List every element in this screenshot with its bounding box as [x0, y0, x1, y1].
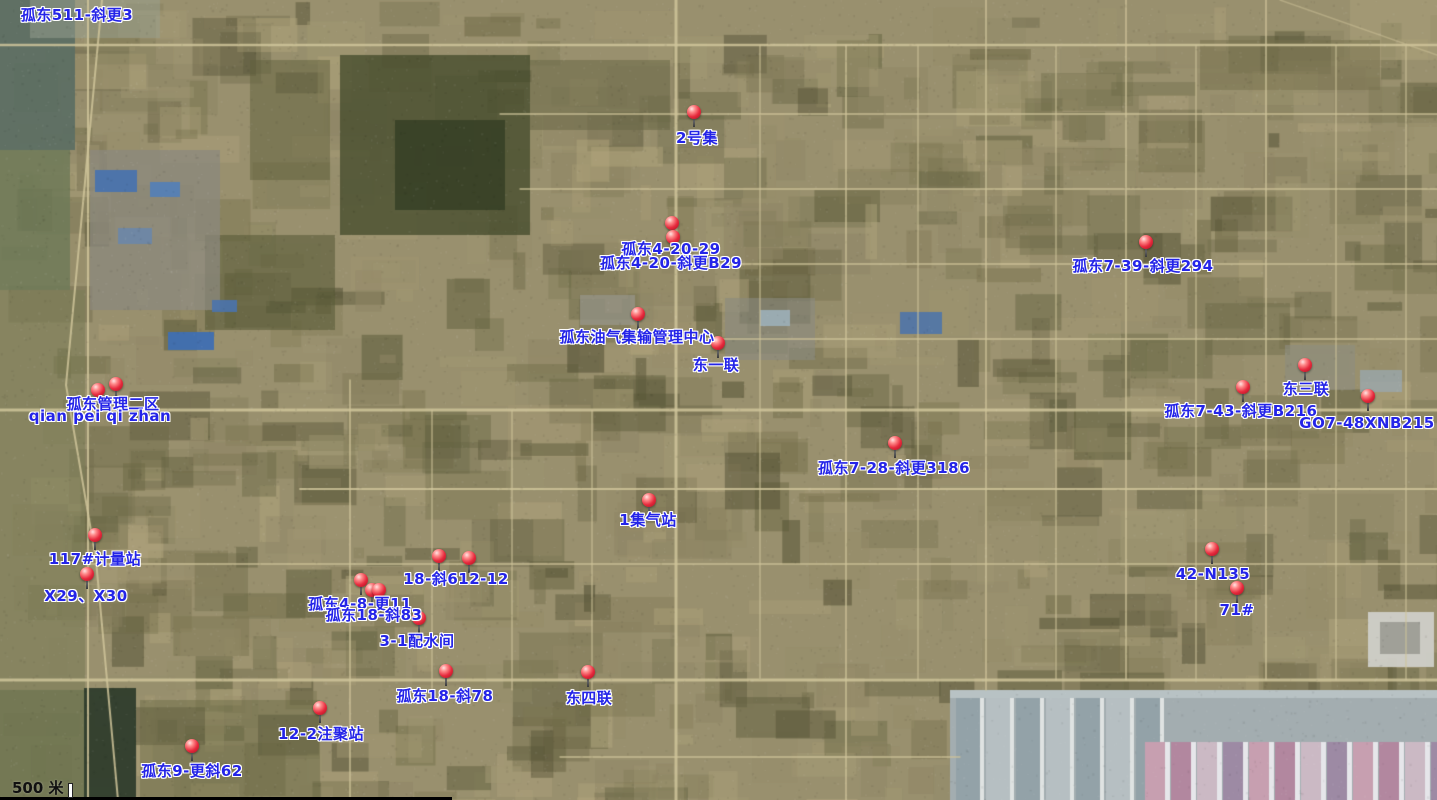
- pin-head-icon: [581, 665, 595, 679]
- marker-layer: 孤东511-斜更32号集孤东4-20-29孤东4-20-斜更B29孤东7-39-…: [0, 0, 1437, 800]
- scale-label: 500 米: [12, 777, 64, 798]
- map-label[interactable]: 71#: [1220, 602, 1255, 618]
- map-label[interactable]: 孤东7-43-斜更B216: [1164, 403, 1317, 419]
- map-label[interactable]: 3-1配水间: [379, 633, 454, 649]
- pin-head-icon: [631, 307, 645, 321]
- map-label[interactable]: 2号集: [676, 130, 718, 146]
- satellite-map-viewport[interactable]: 孤东511-斜更32号集孤东4-20-29孤东4-20-斜更B29孤东7-39-…: [0, 0, 1437, 800]
- scale-bar: 500 米: [0, 760, 460, 800]
- pin-head-icon: [313, 701, 327, 715]
- pin-head-icon: [1230, 581, 1244, 595]
- pin-head-icon: [888, 436, 902, 450]
- pin-head-icon: [462, 551, 476, 565]
- map-label[interactable]: GO7-48XNB215: [1299, 415, 1434, 431]
- pin-head-icon: [665, 216, 679, 230]
- map-label[interactable]: 42-N135: [1176, 566, 1250, 582]
- pin-head-icon: [185, 739, 199, 753]
- pin-head-icon: [1205, 542, 1219, 556]
- map-label[interactable]: 东四联: [566, 690, 613, 706]
- map-label[interactable]: 孤东511-斜更3: [21, 7, 133, 23]
- map-label[interactable]: 12-2注聚站: [278, 726, 364, 742]
- map-label[interactable]: 1集气站: [619, 512, 676, 528]
- pin-head-icon: [1236, 380, 1250, 394]
- map-label[interactable]: 孤东7-39-斜更294: [1072, 258, 1213, 274]
- map-label[interactable]: X29、X30: [44, 588, 127, 604]
- pin-head-icon: [1361, 389, 1375, 403]
- pin-head-icon: [88, 528, 102, 542]
- map-label[interactable]: 孤东18-斜83: [326, 607, 423, 623]
- map-label[interactable]: 东三联: [1283, 381, 1330, 397]
- map-label[interactable]: 18-斜612-12: [403, 571, 509, 587]
- pin-head-icon: [109, 377, 123, 391]
- pin-head-icon: [642, 493, 656, 507]
- map-label[interactable]: 孤东4-20-斜更B29: [600, 255, 742, 271]
- pin-head-icon: [1139, 235, 1153, 249]
- map-label[interactable]: 孤东18-斜78: [397, 688, 494, 704]
- map-label[interactable]: 孤东7-28-斜更3186: [818, 460, 970, 476]
- pin-head-icon: [1298, 358, 1312, 372]
- pin-head-icon: [432, 549, 446, 563]
- pin-head-icon: [439, 664, 453, 678]
- pin-head-icon: [687, 105, 701, 119]
- map-label[interactable]: 孤东油气集输管理中心: [559, 329, 714, 345]
- map-label[interactable]: 东一联: [693, 357, 740, 373]
- pin-head-icon: [80, 567, 94, 581]
- map-label[interactable]: qian pei qi zhan: [29, 408, 172, 424]
- map-label[interactable]: 117#计量站: [49, 551, 141, 567]
- scale-bar-tick: [68, 783, 73, 798]
